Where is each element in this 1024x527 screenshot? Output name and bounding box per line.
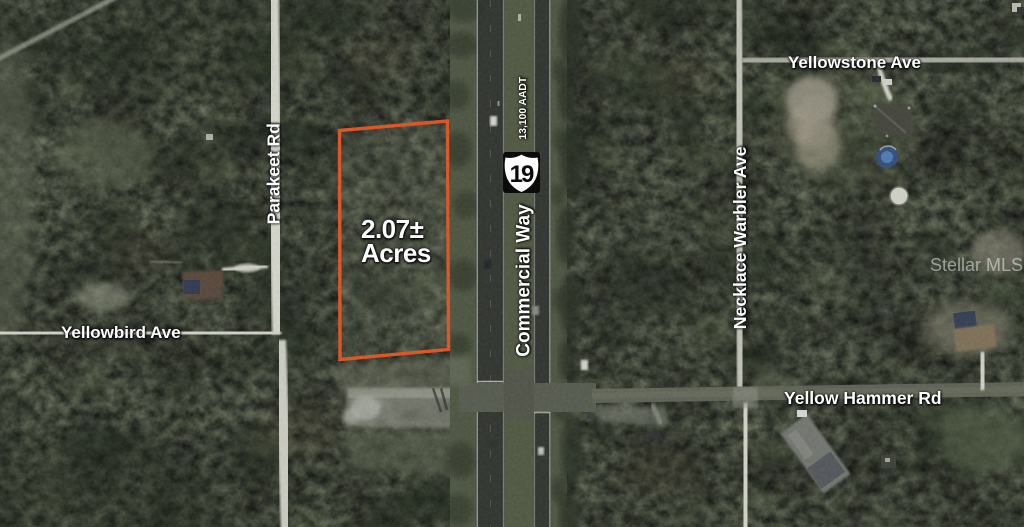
svg-text:19: 19 bbox=[510, 161, 534, 188]
